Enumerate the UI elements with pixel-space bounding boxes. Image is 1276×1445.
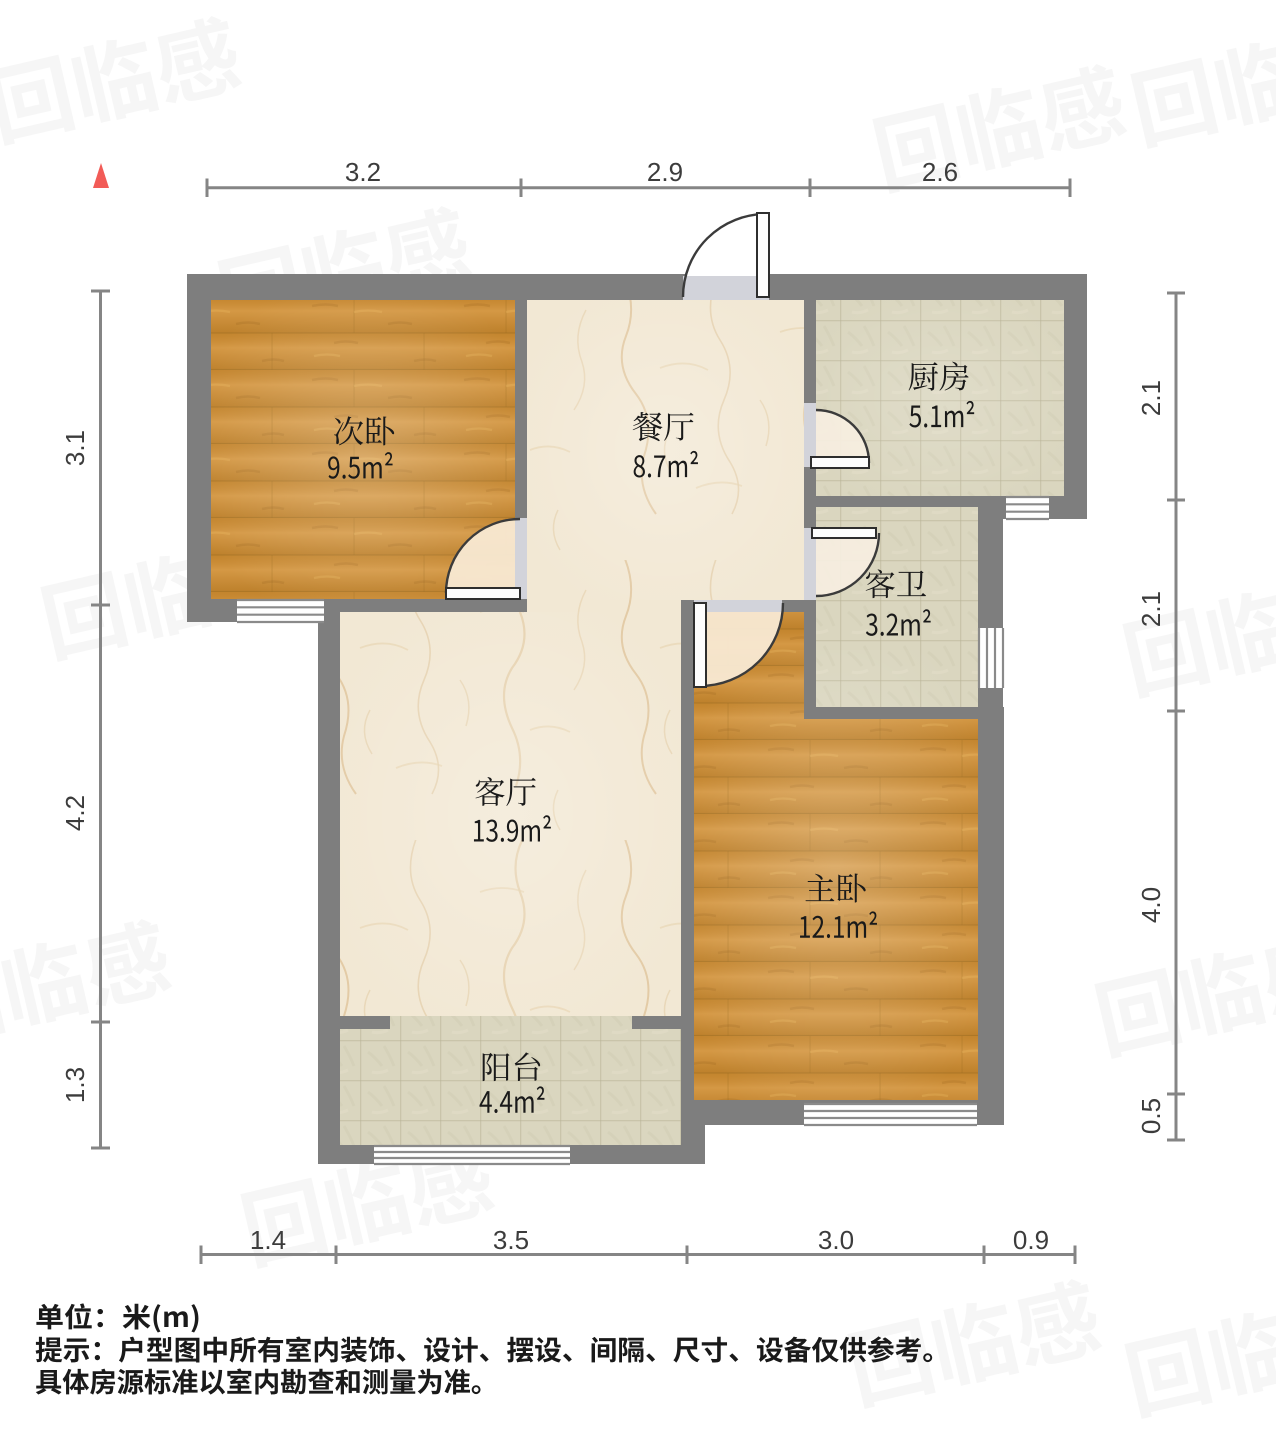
svg-text:2.1: 2.1 — [1136, 591, 1166, 627]
svg-text:0.9: 0.9 — [1013, 1225, 1049, 1255]
svg-text:4.2: 4.2 — [60, 795, 90, 831]
svg-text:1.4: 1.4 — [250, 1225, 286, 1255]
svg-text:3.5: 3.5 — [493, 1225, 529, 1255]
svg-text:0.5: 0.5 — [1136, 1098, 1166, 1134]
svg-text:2.6: 2.6 — [922, 157, 958, 187]
svg-text:2.9: 2.9 — [647, 157, 683, 187]
svg-text:3.2: 3.2 — [345, 157, 381, 187]
svg-text:4.0: 4.0 — [1136, 887, 1166, 923]
svg-text:3.0: 3.0 — [818, 1225, 854, 1255]
svg-text:3.1: 3.1 — [60, 430, 90, 466]
svg-text:2.1: 2.1 — [1136, 380, 1166, 416]
svg-text:1.3: 1.3 — [60, 1067, 90, 1103]
